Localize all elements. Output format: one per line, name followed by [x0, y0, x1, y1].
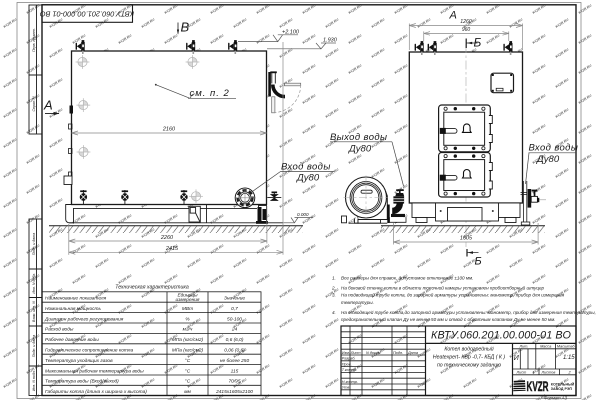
- svg-text:1:15: 1:15: [563, 355, 575, 361]
- svg-text:Лист: Лист: [516, 370, 527, 374]
- svg-text:измерения: измерения: [175, 298, 199, 303]
- svg-text:Котел водогрейный: Котел водогрейный: [444, 346, 493, 353]
- svg-text:На подводящей трубе котла, до: На подводящей трубе котла, до запорной а…: [341, 292, 565, 298]
- svg-text:В: В: [181, 19, 190, 34]
- svg-text:N докум.: N докум.: [366, 351, 381, 355]
- svg-text:Т.контр.: Т.контр.: [342, 368, 357, 372]
- svg-text:1.: 1.: [332, 275, 336, 280]
- svg-text:Гидравлическое сопротивление к: Гидравлическое сопротивление котла: [45, 348, 133, 354]
- svg-text:Лист: Лист: [350, 351, 361, 355]
- svg-text:температуры.: температуры.: [341, 300, 374, 305]
- svg-text:Расход воды: Расход воды: [45, 327, 74, 333]
- svg-text:предохранительный клапан Ду н: предохранительный клапан Ду не менее 50 …: [341, 316, 556, 322]
- svg-text:°С: °С: [185, 379, 191, 385]
- svg-text:Heatexpert- КВр -0,7- КБД ( К: Heatexpert- КВр -0,7- КБД ( К ): [433, 355, 506, 361]
- svg-text:70/95: 70/95: [228, 379, 240, 385]
- svg-text:Максимальная рабочая температу: Максимальная рабочая температура воды: [45, 368, 144, 374]
- svg-text:Выход воды: Выход воды: [330, 132, 387, 143]
- svg-text:115: 115: [231, 368, 239, 374]
- svg-text:Температура воды (Вход/выход): Температура воды (Вход/выход): [45, 379, 119, 385]
- svg-text:не более 250: не более 250: [220, 358, 250, 364]
- svg-text:1: 1: [533, 370, 535, 374]
- svg-text:1605: 1605: [460, 236, 473, 242]
- svg-text:Утв.: Утв.: [342, 386, 351, 390]
- svg-text:Формат А3: Формат А3: [544, 395, 568, 400]
- svg-text:Листов: Листов: [541, 370, 556, 374]
- svg-text:Наименование показателя: Наименование показателя: [45, 296, 107, 302]
- svg-text:0,7: 0,7: [231, 306, 238, 312]
- svg-text:Ду80: Ду80: [348, 144, 372, 155]
- svg-text:по техническому заданию: по техническому заданию: [437, 363, 501, 369]
- svg-text:960: 960: [462, 27, 471, 33]
- svg-text:°С: °С: [185, 358, 191, 364]
- svg-text:Изм.: Изм.: [342, 351, 350, 355]
- svg-text:Справ. N: Справ. N: [32, 96, 36, 111]
- svg-text:см. п. 2: см. п. 2: [190, 88, 230, 99]
- svg-text:Перв. примен.: Перв. примен.: [32, 28, 36, 52]
- svg-text:%: %: [185, 316, 190, 322]
- svg-text:Техническая характеристика: Техническая характеристика: [115, 285, 189, 291]
- svg-text:1.930: 1.930: [323, 38, 338, 44]
- svg-text:Взам. инв. N: Взам. инв. N: [32, 301, 36, 322]
- svg-text:0,6 (6,0): 0,6 (6,0): [226, 337, 244, 343]
- svg-text:4.: 4.: [332, 310, 336, 315]
- svg-text:КВТУ.060.201.00.000-01 ВО: КВТУ.060.201.00.000-01 ВО: [40, 9, 134, 18]
- svg-text:1260: 1260: [460, 19, 472, 25]
- svg-text:Рабочее давление воды: Рабочее давление воды: [45, 337, 99, 343]
- svg-text:МПа (кгс/см2): МПа (кгс/см2): [172, 337, 204, 343]
- svg-text:Вход воды: Вход воды: [281, 162, 331, 173]
- svg-text:Все размеры для справок, допус: Все размеры для справок, допустимое откл…: [341, 275, 473, 280]
- svg-text:KVZR: KVZR: [527, 379, 549, 394]
- svg-text:м3/ч: м3/ч: [183, 327, 193, 333]
- svg-text:Диапазон рабочего регулировани: Диапазон рабочего регулирования: [44, 316, 124, 322]
- svg-text:24: 24: [231, 327, 238, 333]
- svg-text:На боковой стенке котла в обла: На боковой стенке котла в области топочн…: [341, 284, 545, 290]
- svg-text:А: А: [449, 10, 457, 22]
- svg-text:Б: Б: [474, 36, 482, 50]
- svg-text:Масштаб: Масштаб: [557, 344, 576, 348]
- svg-text:Инв. N подл.: Инв. N подл.: [32, 370, 36, 391]
- svg-text:°С: °С: [185, 368, 191, 374]
- svg-text:Подп. и дата: Подп. и дата: [32, 233, 36, 256]
- svg-text:Масса: Масса: [540, 344, 551, 348]
- svg-text:Габариты котла (длина х ширина: Габариты котла (длина х ширина х высота): [45, 389, 147, 395]
- svg-text:Подп. и дата: Подп. и дата: [32, 335, 36, 358]
- svg-text:Дата: Дата: [407, 351, 418, 355]
- svg-text:Температура уходящих газов: Температура уходящих газов: [45, 358, 113, 364]
- svg-text:мм: мм: [184, 390, 191, 395]
- svg-text:Подп.: Подп.: [393, 351, 403, 355]
- svg-text:2160: 2160: [162, 127, 176, 133]
- svg-text:0.000: 0.000: [297, 212, 309, 217]
- svg-text:КВТУ.060.201.00.000-01 ВО: КВТУ.060.201.00.000-01 ВО: [431, 329, 572, 341]
- svg-text:Разраб.: Разраб.: [342, 357, 356, 361]
- svg-text:Номинальная мощность: Номинальная мощность: [45, 306, 102, 312]
- svg-text:2415х1605х2100: 2415х1605х2100: [215, 389, 253, 395]
- svg-text:На отводящей трубе котла,до за: На отводящей трубе котла,до запорной арм…: [341, 309, 596, 315]
- svg-text:Н.контр.: Н.контр.: [342, 380, 358, 384]
- svg-text:50-100: 50-100: [227, 316, 242, 322]
- svg-text:А: А: [43, 98, 53, 113]
- svg-text:КОТЕЛЬНЫЙ: КОТЕЛЬНЫЙ: [551, 383, 575, 387]
- svg-text:Б: Б: [475, 255, 482, 267]
- svg-text:0,06 (0,6): 0,06 (0,6): [224, 348, 245, 354]
- svg-text:2.: 2.: [331, 285, 336, 290]
- svg-text:+2.100: +2.100: [282, 29, 300, 35]
- svg-text:3.: 3.: [332, 293, 336, 298]
- svg-text:Инв. N дубл.: Инв. N дубл.: [32, 273, 36, 294]
- svg-text:ЗАВОД РЭП: ЗАВОД РЭП: [551, 387, 573, 391]
- svg-text:Ду80: Ду80: [536, 154, 560, 165]
- svg-text:Значение: Значение: [224, 296, 245, 302]
- svg-text:Пров.: Пров.: [342, 362, 352, 366]
- svg-text:Ду80: Ду80: [296, 173, 320, 184]
- svg-text:Вход воды: Вход воды: [529, 143, 579, 154]
- svg-text:2260: 2260: [160, 235, 174, 241]
- svg-text:Лит.: Лит.: [519, 344, 529, 348]
- svg-text:МВт: МВт: [182, 306, 193, 312]
- svg-text:МПа (кгс/см2): МПа (кгс/см2): [172, 348, 204, 354]
- svg-text:2415: 2415: [165, 246, 179, 252]
